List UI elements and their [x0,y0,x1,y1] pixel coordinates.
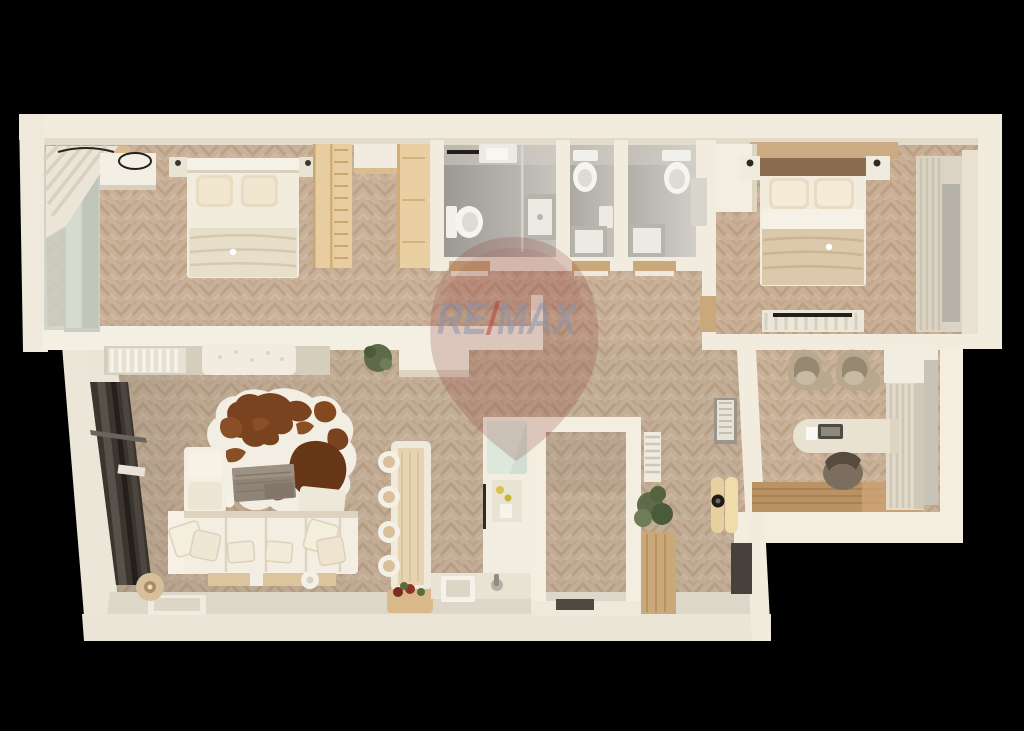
svg-text:RE/MAX: RE/MAX [437,293,579,344]
